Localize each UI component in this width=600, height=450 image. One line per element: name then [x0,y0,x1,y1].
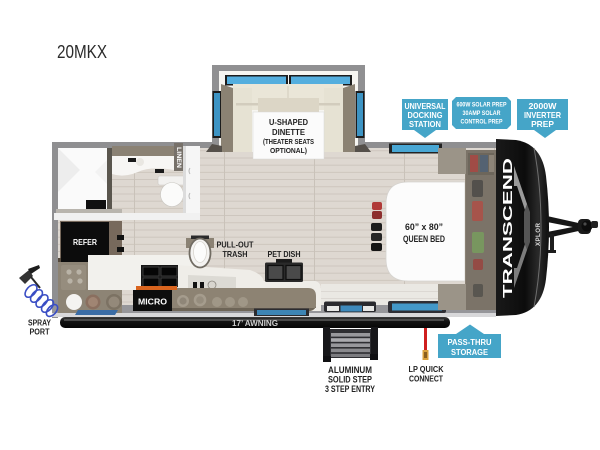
svg-text:CONTROL PREP: CONTROL PREP [461,119,503,126]
svg-text:PORT: PORT [30,327,51,337]
svg-text:3 STEP ENTRY: 3 STEP ENTRY [325,384,375,394]
svg-text:PASS-THRU: PASS-THRU [448,337,492,347]
svg-text:(THEATER SEATS: (THEATER SEATS [263,137,314,146]
svg-text:60” x 80”: 60” x 80” [405,222,443,232]
svg-text:20MKX: 20MKX [57,41,107,62]
svg-text:SOLID STEP: SOLID STEP [328,375,372,385]
svg-text:LP QUICK: LP QUICK [409,364,445,374]
svg-text:STATION: STATION [409,119,441,129]
svg-text:U-SHAPED: U-SHAPED [269,117,308,127]
svg-text:XPLOR: XPLOR [535,223,542,246]
svg-text:MICRO: MICRO [138,297,167,307]
svg-text:OPTIONAL): OPTIONAL) [270,146,308,155]
svg-text:ALUMINUM: ALUMINUM [328,365,372,375]
svg-text:17’ AWNING: 17’ AWNING [232,318,278,328]
svg-text:PREP: PREP [531,119,554,129]
svg-text:REFER: REFER [73,237,98,247]
svg-text:CONNECT: CONNECT [409,374,444,384]
svg-text:30AMP SOLAR: 30AMP SOLAR [463,110,501,117]
svg-text:PULL-OUT: PULL-OUT [217,240,255,250]
svg-text:TRANSCEND: TRANSCEND [500,158,515,298]
svg-text:LINEN: LINEN [175,147,182,168]
svg-text:600W SOLAR PREP: 600W SOLAR PREP [457,102,507,109]
svg-text:TRASH: TRASH [223,249,248,259]
svg-text:DINETTE: DINETTE [272,127,305,137]
svg-text:STORAGE: STORAGE [451,347,488,357]
svg-text:PET DISH: PET DISH [268,249,301,259]
svg-text:QUEEN BED: QUEEN BED [403,234,445,244]
